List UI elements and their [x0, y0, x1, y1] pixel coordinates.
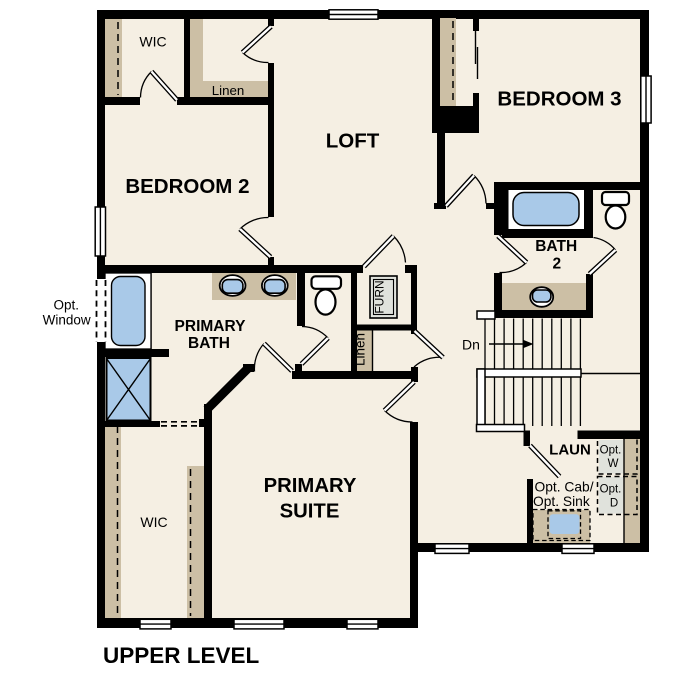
svg-text:Opt.: Opt.	[600, 445, 622, 457]
svg-text:WIC: WIC	[140, 514, 167, 530]
svg-text:Opt.: Opt.	[54, 297, 80, 312]
svg-text:Dn: Dn	[462, 337, 480, 353]
svg-text:SUITE: SUITE	[280, 501, 340, 523]
svg-text:FURN: FURN	[373, 280, 387, 313]
svg-text:BEDROOM 3: BEDROOM 3	[497, 88, 621, 111]
svg-text:Linen: Linen	[212, 83, 245, 98]
svg-text:Opt.: Opt.	[600, 483, 622, 495]
svg-text:LAUN: LAUN	[549, 442, 591, 459]
svg-text:PRIMARY: PRIMARY	[175, 318, 247, 335]
svg-text:W: W	[608, 458, 619, 470]
svg-text:2: 2	[552, 256, 561, 273]
svg-text:Linen: Linen	[353, 333, 368, 366]
svg-text:Opt. Cab/: Opt. Cab/	[535, 480, 594, 495]
svg-text:BATH: BATH	[535, 238, 577, 255]
svg-text:BATH: BATH	[188, 335, 230, 352]
svg-text:LOFT: LOFT	[326, 130, 380, 153]
svg-text:D: D	[610, 498, 618, 510]
svg-text:WIC: WIC	[139, 34, 166, 50]
svg-text:BEDROOM 2: BEDROOM 2	[125, 175, 249, 198]
svg-text:UPPER LEVEL: UPPER LEVEL	[103, 643, 260, 668]
svg-text:PRIMARY: PRIMARY	[264, 475, 357, 497]
svg-text:Window: Window	[43, 313, 91, 328]
svg-text:Opt. Sink: Opt. Sink	[533, 494, 590, 509]
